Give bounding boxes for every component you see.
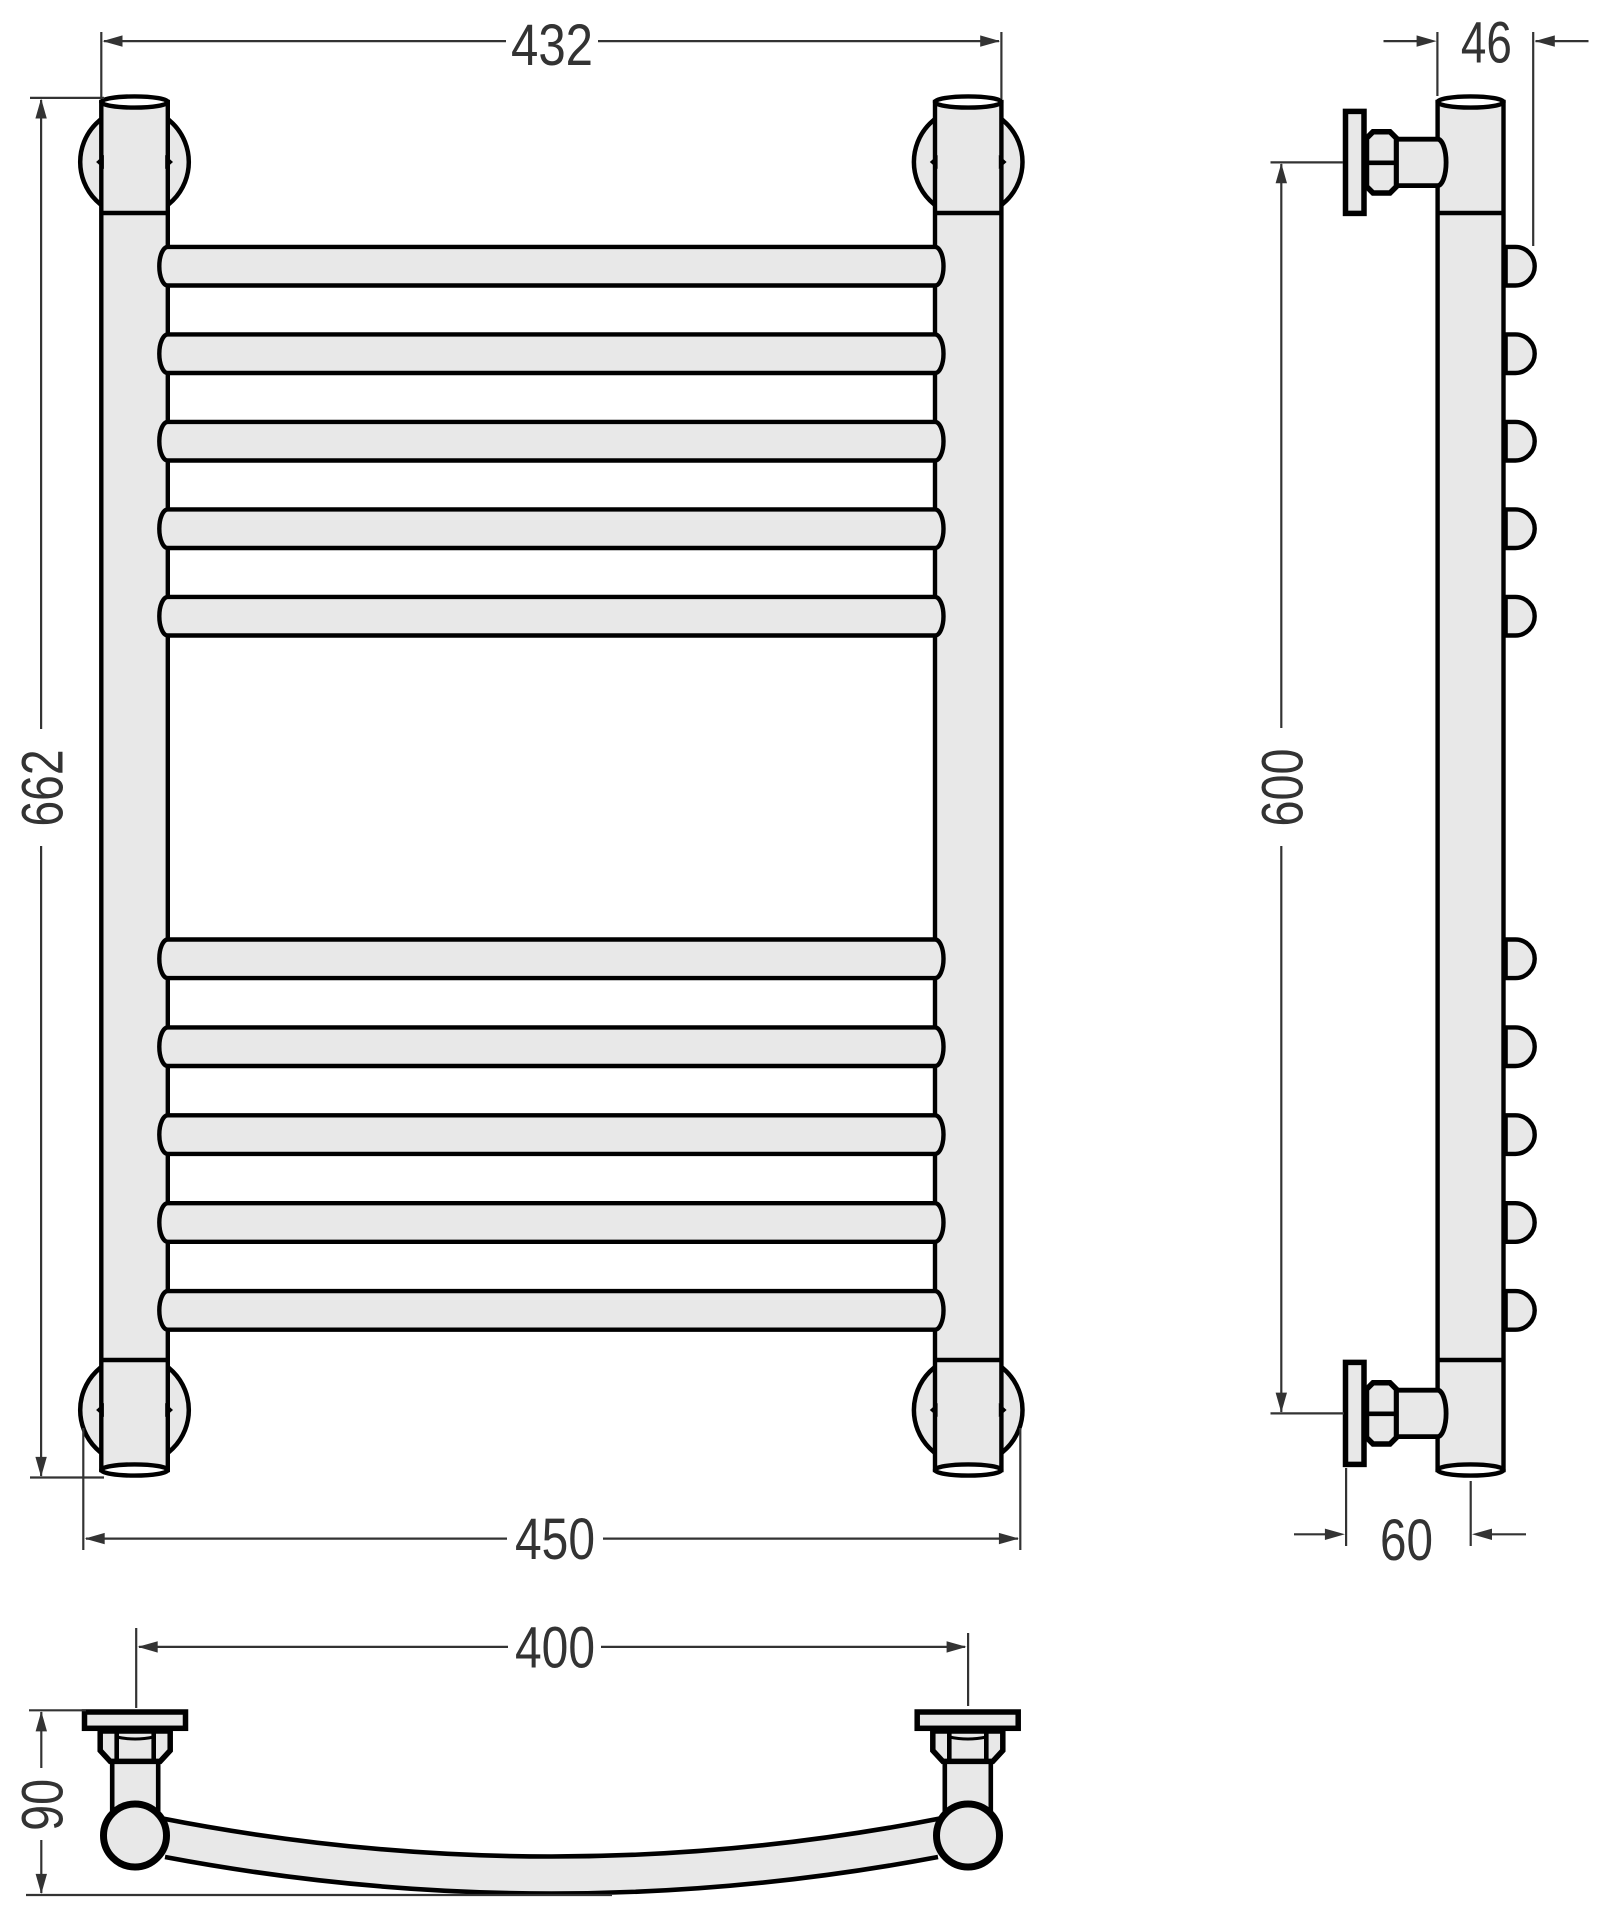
- svg-text:662: 662: [11, 750, 76, 827]
- svg-text:432: 432: [511, 13, 593, 78]
- svg-text:60: 60: [1380, 1508, 1433, 1573]
- svg-text:450: 450: [515, 1507, 595, 1572]
- svg-text:600: 600: [1251, 749, 1316, 827]
- svg-text:90: 90: [11, 1779, 76, 1831]
- svg-text:46: 46: [1461, 11, 1512, 76]
- svg-text:400: 400: [515, 1616, 595, 1681]
